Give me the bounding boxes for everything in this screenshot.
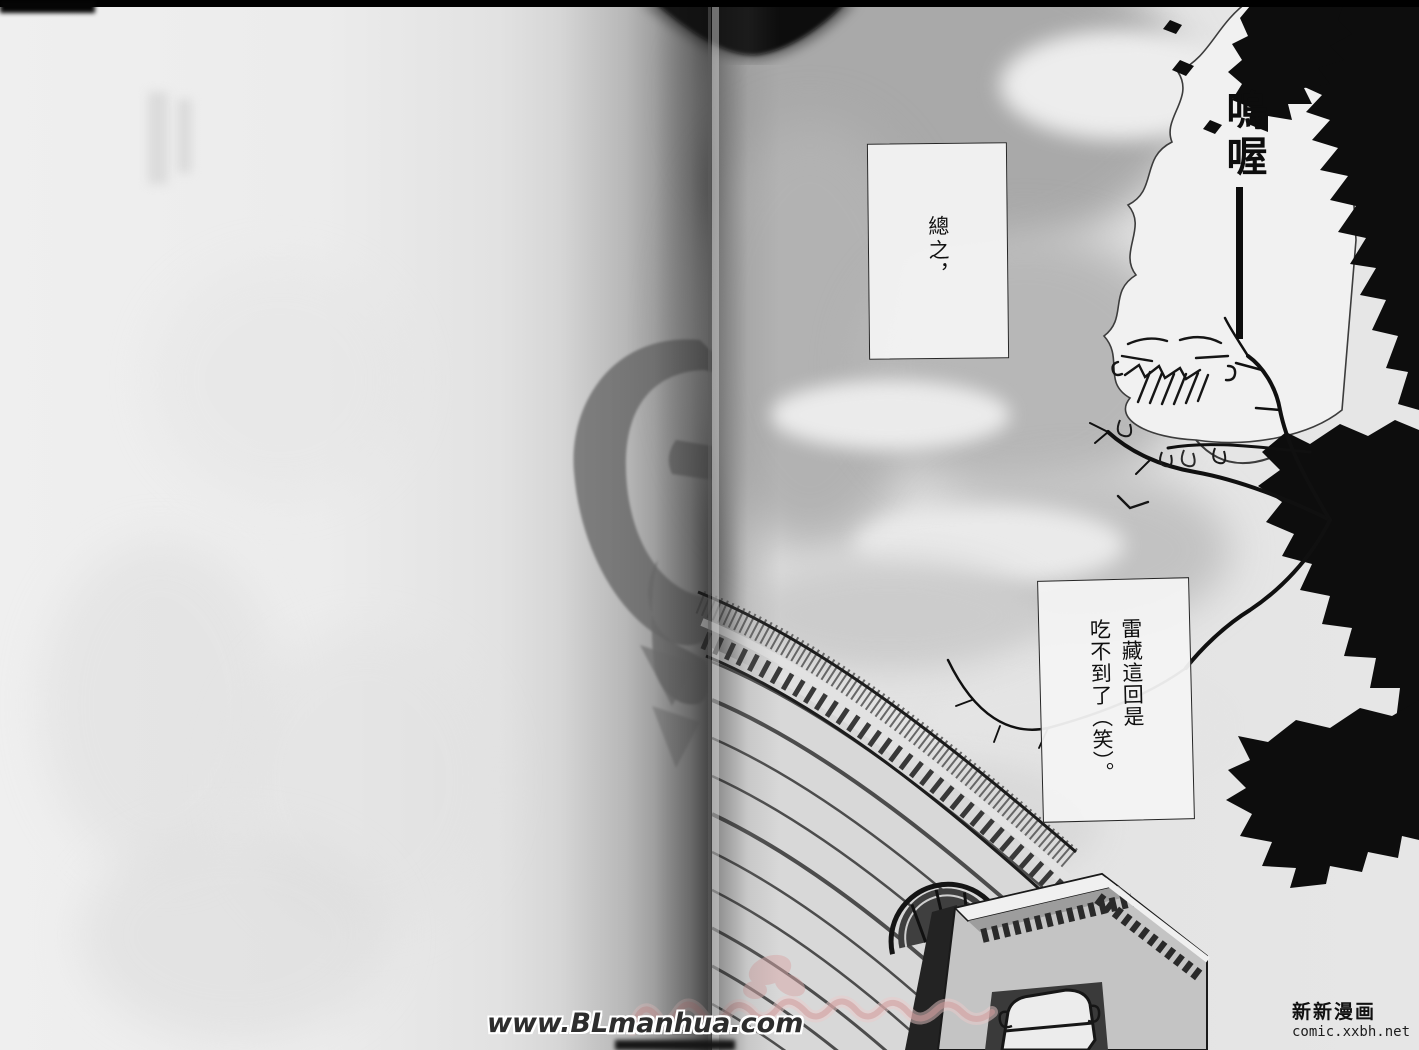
scan-bottom-wedge	[615, 1040, 735, 1050]
scan-top-strip	[0, 0, 1419, 7]
caption-text-2-line-1: 雷藏這回是	[1114, 617, 1150, 820]
caption-box-2: 雷藏這回是 吃不到了（笑）。	[1037, 577, 1195, 823]
gutter-shadow-left	[560, 0, 712, 1050]
watermark-site-name: 新新漫画	[1292, 1002, 1410, 1024]
watermark-xxbh: 新新漫画 comic.xxbh.net	[1292, 1002, 1410, 1040]
scan-top-strip-left	[0, 0, 95, 13]
shout-dash: ——	[1236, 187, 1243, 339]
caption-text-1: 總之，	[923, 215, 954, 287]
page-edge-highlight	[712, 0, 719, 1050]
watermark-site-url: comic.xxbh.net	[1292, 1024, 1410, 1040]
gutter-shadow-right	[712, 0, 802, 1050]
caption-text-2-line-2: 吃不到了（笑）。	[1083, 618, 1119, 821]
watermark-blmanhua: www.BLmanhua.com	[487, 1008, 803, 1039]
shout-text: 嗚喔	[1213, 89, 1273, 181]
page-edge-line	[708, 0, 711, 1050]
caption-box-1: 總之，	[867, 142, 1009, 359]
manga-spread: 總之， 雷藏這回是 吃不到了（笑）。 嗚喔 —— www.BLmanhua.co…	[0, 0, 1419, 1050]
